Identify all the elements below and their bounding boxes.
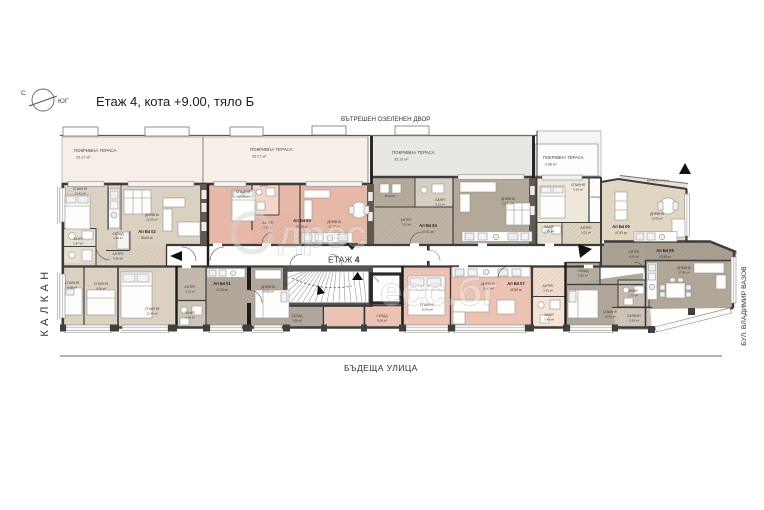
svg-text:ДНЕВНА: ДНЕВНА (145, 213, 159, 217)
svg-text:Ап Б4 02: Ап Б4 02 (138, 229, 156, 234)
svg-text:ПОКРИВНА ТЕРАСА: ПОКРИВНА ТЕРАСА (392, 150, 435, 155)
svg-text:Ап Б4 07: Ап Б4 07 (507, 281, 525, 286)
svg-text:ДНЕВНА: ДНЕВНА (501, 197, 515, 201)
svg-text:ДНЕВНА: ДНЕВНА (261, 285, 275, 289)
svg-text:СПАЛНЯ: СПАЛНЯ (145, 307, 160, 311)
svg-text:36.07 м²: 36.07 м² (252, 155, 267, 159)
svg-text:дрес: дрес (278, 214, 367, 256)
svg-text:2.70 м²: 2.70 м² (628, 294, 638, 298)
svg-text:Ап Б4 04: Ап Б4 04 (419, 223, 437, 228)
svg-text:13.41 м²: 13.41 м² (74, 192, 85, 196)
svg-text:29.22 м²: 29.22 м² (76, 156, 91, 160)
svg-text:СКЛАД: СКЛАД (376, 314, 388, 318)
svg-text:БАНЯ: БАНЯ (628, 289, 638, 293)
svg-text:35.32 м²: 35.32 м² (394, 158, 409, 162)
svg-text:СПАЛНЯ: СПАЛНЯ (94, 282, 109, 286)
svg-text:БАНЯ: БАНЯ (73, 237, 83, 241)
svg-text:47.53 м²: 47.53 м² (615, 231, 627, 235)
svg-text:АНТРЕ: АНТРЕ (113, 252, 125, 256)
svg-text:Ап Б4 06: Ап Б4 06 (656, 248, 674, 253)
svg-text:есс.бг: есс.бг (380, 270, 499, 314)
svg-text:9.19 м²: 9.19 м² (573, 188, 583, 192)
svg-text:АНТРЕ: АНТРЕ (629, 250, 641, 254)
svg-text:АНТРЕ: АНТРЕ (543, 284, 555, 288)
svg-text:ПОКРИВНА ТЕРАСА: ПОКРИВНА ТЕРАСА (250, 147, 293, 152)
svg-text:3.19 м²: 3.19 м² (435, 203, 445, 207)
svg-text:12.44 м²: 12.44 м² (146, 312, 157, 316)
svg-text:СПАЛНЯ: СПАЛНЯ (236, 190, 251, 194)
svg-text:3.92 м²: 3.92 м² (185, 290, 195, 294)
svg-text:19.05 м²: 19.05 м² (651, 217, 662, 221)
svg-text:42.26 м²: 42.26 м² (216, 288, 228, 292)
svg-text:ДНЕВНА: ДНЕВНА (677, 266, 691, 270)
svg-text:ВЪТРЕШЕН ОЗЕЛЕНЕН ДВОР: ВЪТРЕШЕН ОЗЕЛЕНЕН ДВОР (341, 116, 430, 123)
svg-text:ЮГ: ЮГ (58, 98, 69, 105)
svg-text:53.88 м²: 53.88 м² (659, 255, 671, 259)
svg-text:2.75 м²: 2.75 м² (544, 230, 554, 234)
svg-text:ПОКРИВНА ТЕРАСА: ПОКРИВНА ТЕРАСА (74, 148, 117, 153)
svg-text:СКЛАД: СКЛАД (291, 314, 303, 318)
svg-text:10.60 м²: 10.60 м² (604, 315, 615, 319)
svg-text:АНТРЕ: АНТРЕ (185, 285, 197, 289)
svg-text:2.18 м²: 2.18 м² (185, 316, 195, 320)
svg-text:БАНЯ: БАНЯ (260, 184, 268, 188)
svg-text:3.35 м²: 3.35 м² (543, 289, 553, 293)
svg-text:47.61 м²: 47.61 м² (422, 230, 434, 234)
svg-text:6.46 м²: 6.46 м² (113, 257, 123, 261)
svg-text:БЪДЕЩА УЛИЦА: БЪДЕЩА УЛИЦА (344, 363, 418, 373)
svg-text:7.60 м²: 7.60 м² (401, 223, 411, 227)
svg-text:БАЛКОН: БАЛКОН (627, 314, 641, 318)
svg-text:БАНЯ: БАНЯ (185, 311, 195, 315)
svg-text:2.01 м²: 2.01 м² (581, 231, 591, 235)
svg-text:АНТРЕ: АНТРЕ (581, 226, 593, 230)
svg-text:ЕТАЖ 4: ЕТАЖ 4 (328, 255, 360, 265)
svg-text:Ап Б4 01: Ап Б4 01 (213, 281, 231, 286)
svg-text:2.55 м²: 2.55 м² (629, 319, 639, 323)
svg-text:5.66 м²: 5.66 м² (578, 274, 588, 278)
svg-text:20.86 м²: 20.86 м² (262, 290, 273, 294)
svg-text:КАЛКАН: КАЛКАН (39, 267, 51, 336)
svg-text:4.65 м²: 4.65 м² (629, 255, 639, 259)
svg-text:СПАЛНЯ: СПАЛНЯ (73, 187, 88, 191)
svg-text:2.98 м²: 2.98 м² (292, 319, 302, 323)
svg-text:22.51 м²: 22.51 м² (502, 202, 513, 206)
svg-text:27.85 м²: 27.85 м² (678, 271, 689, 275)
svg-text:9.58 м²: 9.58 м² (545, 163, 557, 167)
svg-text:СКЛАД: СКЛАД (590, 195, 599, 199)
svg-text:5.98 м²: 5.98 м² (377, 319, 387, 323)
svg-text:БУЛ. ВЛАДИМИР ВАЗОВ: БУЛ. ВЛАДИМИР ВАЗОВ (741, 266, 748, 346)
svg-text:22.08 м²: 22.08 м² (146, 218, 157, 222)
svg-text:БАНЯ: БАНЯ (435, 198, 445, 202)
svg-text:ДНЕВНА: ДНЕВНА (650, 212, 664, 216)
svg-text:СКЛАД: СКЛАД (577, 269, 589, 273)
svg-text:СПАЛНЯ: СПАЛНЯ (571, 183, 586, 187)
svg-text:8.98 м²: 8.98 м² (67, 286, 77, 290)
svg-text:БАНЯ: БАНЯ (544, 225, 554, 229)
svg-text:9.08 м²: 9.08 м² (96, 287, 106, 291)
svg-text:Етаж 4, кота +9.00, тяло Б: Етаж 4, кота +9.00, тяло Б (96, 94, 254, 109)
svg-text:12.18 м²: 12.18 м² (237, 195, 248, 199)
svg-text:ПОКРИВНА ТЕРАСА: ПОКРИВНА ТЕРАСА (543, 155, 584, 160)
svg-text:СПАЛНЯ: СПАЛНЯ (603, 310, 618, 314)
svg-text:АНТРЕ: АНТРЕ (401, 218, 413, 222)
svg-text:43.98 м²: 43.98 м² (510, 288, 522, 292)
svg-text:БАЛКОН 3.76 м²: БАЛКОН 3.76 м² (647, 179, 669, 183)
svg-text:2.87 м²: 2.87 м² (73, 242, 83, 246)
svg-text:СПАЛНЯ: СПАЛНЯ (65, 281, 80, 285)
svg-text:С: С (21, 90, 26, 97)
svg-text:59.84 м²: 59.84 м² (141, 236, 153, 240)
svg-text:3.40 м²: 3.40 м² (544, 318, 554, 322)
svg-text:БАНЯ: БАНЯ (544, 313, 554, 317)
svg-text:1.92 м²: 1.92 м² (113, 236, 123, 240)
svg-text:Ап Б4 05: Ап Б4 05 (612, 224, 630, 229)
svg-text:МОКРО: МОКРО (385, 194, 396, 198)
